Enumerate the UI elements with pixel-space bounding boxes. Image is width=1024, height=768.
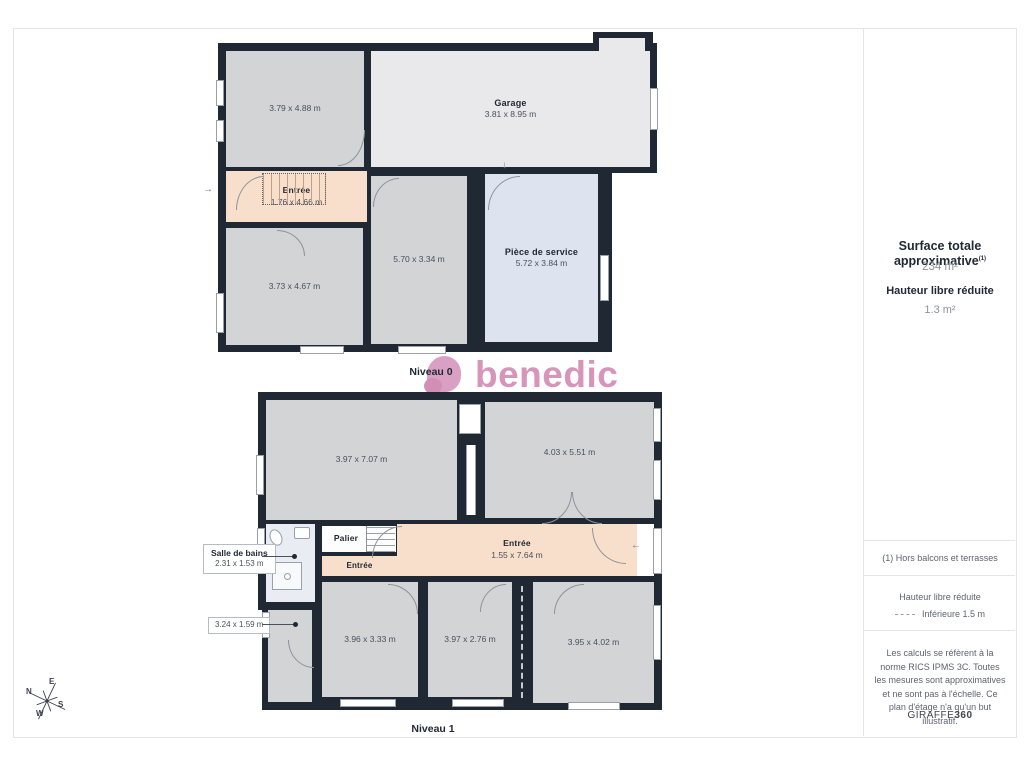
window <box>216 293 224 333</box>
callout-dot <box>293 622 298 627</box>
window <box>398 346 446 354</box>
room-dims: 3.97 x 2.76 m <box>444 634 496 646</box>
reduced-height-dashed-line <box>521 586 523 698</box>
chimney-inset <box>459 404 481 434</box>
room-dims: 3.73 x 4.67 m <box>269 281 321 293</box>
room-dims: 1.55 x 7.64 m <box>491 550 543 562</box>
sink-icon <box>294 527 310 539</box>
room-name: Garage <box>494 97 526 110</box>
floorplan-page: benedic 3.79 x 4.88 m Garage 3.81 x 8.95… <box>0 0 1024 768</box>
sidebar-section-divider <box>864 630 1015 631</box>
room-dims: 3.95 x 4.02 m <box>568 637 620 649</box>
entry-arrow-icon: → <box>203 184 213 195</box>
brand-suffix: 360 <box>954 710 972 721</box>
room-dims: 3.79 x 4.88 m <box>269 103 321 115</box>
window <box>653 460 661 500</box>
window <box>452 699 504 707</box>
window <box>653 605 661 660</box>
callout-salle-de-bains: Salle de bains 2.31 x 1.53 m <box>203 544 276 574</box>
room-dims: 5.72 x 3.84 m <box>516 258 568 270</box>
room-name: Palier <box>334 533 358 545</box>
giraffe360-brand: GIRAFFE360 <box>866 710 1014 721</box>
note-balcons: (1) Hors balcons et terrasses <box>866 553 1014 563</box>
shower-drain-icon <box>284 573 291 580</box>
entry-arrow-icon: ↓ <box>502 160 507 171</box>
compass-n-label: N <box>26 687 32 696</box>
niveau0-label: Niveau 0 <box>383 366 479 378</box>
window <box>256 455 264 495</box>
n1-room-top-left: 3.97 x 7.07 m <box>266 400 457 520</box>
compass-e-label: E <box>49 677 54 686</box>
window <box>600 255 609 301</box>
dashed-line-icon <box>895 614 915 615</box>
compass-w-label: W <box>36 709 44 718</box>
window <box>653 408 661 442</box>
room-dims: 5.70 x 3.34 m <box>393 254 445 266</box>
callout-324: 3.24 x 1.59 m <box>208 617 270 634</box>
window <box>340 699 396 707</box>
window <box>568 702 620 710</box>
entry-arrow-icon: ← <box>631 540 641 551</box>
room-name: Entrée <box>346 560 372 571</box>
room-name: Entrée <box>503 538 531 550</box>
room-dims: 3.81 x 8.95 m <box>485 109 537 121</box>
window <box>653 528 662 574</box>
legend-value: Inférieure 1.5 m <box>922 609 985 619</box>
height-value: 1.3 m² <box>866 304 1014 316</box>
n1-entree-small: Entrée <box>322 556 397 576</box>
room-dims: 3.96 x 3.33 m <box>344 634 396 646</box>
wall-opening <box>466 445 476 515</box>
compass-s-label: S <box>58 700 63 709</box>
room-name: Pièce de service <box>505 246 578 259</box>
room-dims: 4.03 x 5.51 m <box>544 447 596 459</box>
n0-room-garage: Garage 3.81 x 8.95 m <box>371 51 650 167</box>
n0-stairs <box>262 173 326 205</box>
callout-leader-line <box>262 624 295 625</box>
surface-value: 234 m² <box>866 261 1014 273</box>
room-dims: 3.97 x 7.07 m <box>336 454 388 466</box>
sidebar-section-divider <box>864 575 1015 576</box>
legend-row: Inférieure 1.5 m <box>866 609 1014 619</box>
legend-title: Hauteur libre réduite <box>866 592 1014 602</box>
sidebar-section-divider <box>864 540 1015 541</box>
window <box>300 346 344 354</box>
window <box>650 88 658 130</box>
callout-name: Salle de bains <box>211 548 268 559</box>
callout-leader-line <box>262 556 294 557</box>
niveau1-label: Niveau 1 <box>385 723 481 735</box>
callout-dot <box>292 554 297 559</box>
window <box>216 80 224 106</box>
height-title: Hauteur libre réduite <box>866 285 1014 297</box>
window <box>216 120 224 142</box>
callout-dims: 2.31 x 1.53 m <box>211 559 268 570</box>
callout-dims: 3.24 x 1.59 m <box>215 620 263 631</box>
benedic-logo-text: benedic <box>475 354 618 396</box>
brand-name: GIRAFFE <box>907 710 954 721</box>
n1-room-bottom-3: 3.95 x 4.02 m <box>533 582 654 703</box>
